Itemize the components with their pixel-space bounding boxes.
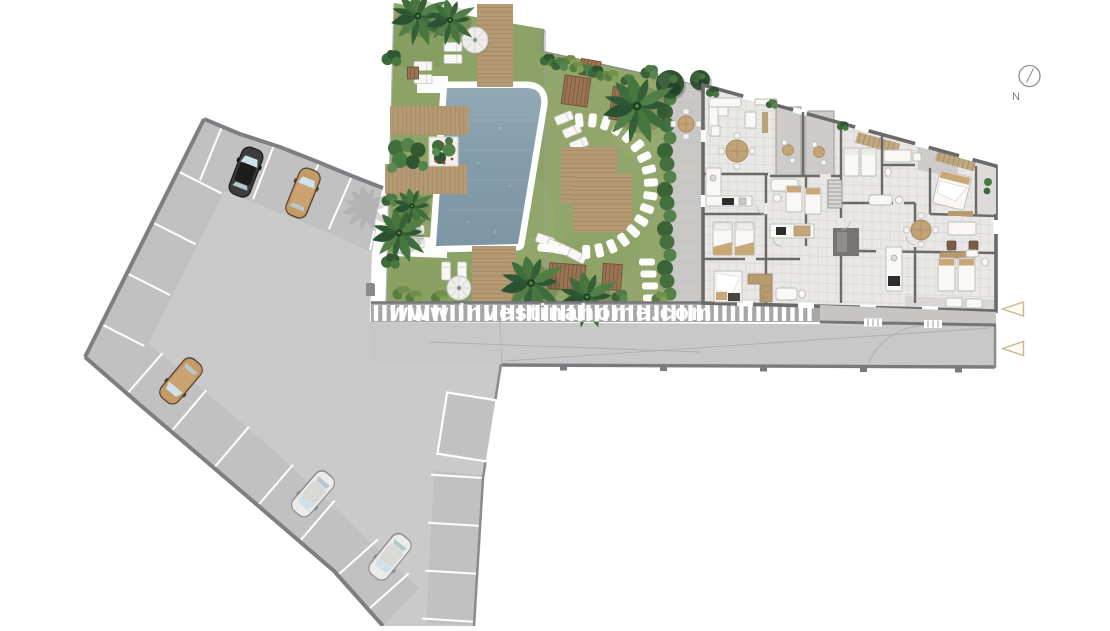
svg-text:www.investinahome.com: www.investinahome.com <box>389 299 714 325</box>
svg-text:N: N <box>1012 91 1020 103</box>
